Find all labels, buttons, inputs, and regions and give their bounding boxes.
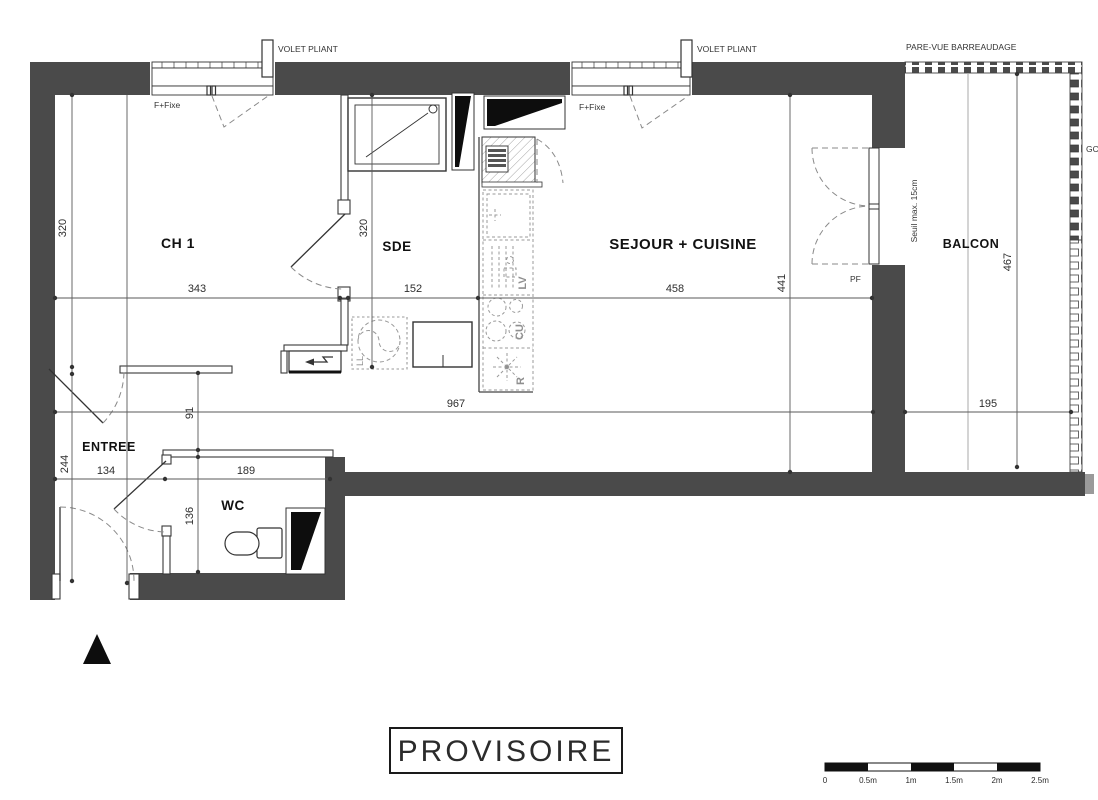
dim-balcon-height: 467 bbox=[1002, 253, 1014, 271]
door-ch1-swing bbox=[291, 267, 344, 289]
railing-right-upper bbox=[1070, 73, 1082, 240]
wall-east-upper bbox=[872, 95, 905, 148]
dim-sde-height: 320 bbox=[358, 219, 370, 237]
door-ch1-leaf bbox=[291, 214, 345, 267]
pf-swing-bottom bbox=[812, 206, 870, 264]
casement-swing-icon bbox=[630, 96, 688, 128]
dim-ch1-width: 343 bbox=[188, 283, 206, 295]
window-right bbox=[572, 62, 690, 128]
dim-sejour-width: 458 bbox=[666, 283, 684, 295]
room-label-balcon: BALCON bbox=[943, 237, 999, 251]
scale-label-0: 0 bbox=[823, 776, 828, 785]
room-label-ch1: CH 1 bbox=[161, 235, 195, 251]
room-label-entree: ENTREE bbox=[82, 440, 136, 454]
room-label-sde: SDE bbox=[382, 239, 411, 254]
wall-east-lower bbox=[872, 265, 905, 474]
dim-wc-depth: 136 bbox=[184, 507, 196, 525]
door-entree-swing bbox=[103, 369, 124, 423]
door-entree-leaf bbox=[49, 369, 103, 423]
balcony-railing bbox=[905, 62, 1082, 472]
kitchen-sink bbox=[487, 194, 530, 237]
scale-bar: 0 0.5m 1m 1.5m 2m 2.5m bbox=[823, 763, 1049, 785]
toilet bbox=[225, 528, 282, 558]
label-pare-vue: PARE-VUE BARREAUDAGE bbox=[906, 42, 1017, 52]
casement-swing-icon bbox=[212, 96, 268, 127]
wall-south-edge bbox=[1085, 474, 1094, 494]
label-gc: GC bbox=[1086, 144, 1098, 154]
fridge-symbol bbox=[493, 353, 521, 381]
sde-fixtures bbox=[289, 98, 472, 372]
railing-top bbox=[905, 62, 1082, 73]
scale-label-15: 1.5m bbox=[945, 776, 963, 785]
volet-pliant-box-left bbox=[262, 40, 273, 77]
north-arrow-icon bbox=[83, 634, 111, 664]
label-cu: CU bbox=[514, 324, 526, 340]
scale-label-2: 2m bbox=[991, 776, 1002, 785]
label-seuil: Seuil max. 15cm bbox=[909, 180, 919, 243]
dimension-lines bbox=[53, 72, 1073, 585]
label-volet-pliant-right: VOLET PLIANT bbox=[697, 44, 757, 54]
dim-ch1-height: 320 bbox=[57, 219, 69, 237]
window-mullion bbox=[207, 86, 211, 95]
floor-plan-drawing: 343 152 458 967 195 134 189 320 244 91 1… bbox=[0, 0, 1098, 800]
wall-south bbox=[333, 472, 1085, 496]
dim-hall-width: 91 bbox=[184, 407, 196, 419]
dim-wc-width: 189 bbox=[237, 465, 255, 477]
door-wc-swing bbox=[114, 509, 166, 532]
radiator bbox=[289, 351, 341, 372]
dim-balcon-width: 195 bbox=[979, 398, 997, 410]
porte-fenetre bbox=[812, 148, 879, 264]
door-jamb bbox=[338, 200, 350, 214]
stamp-text: PROVISOIRE bbox=[398, 735, 615, 768]
wall-west bbox=[30, 62, 55, 600]
dim-entree-depth: 244 bbox=[59, 455, 71, 473]
ventilation-duct bbox=[482, 137, 563, 187]
door-wc-leaf bbox=[114, 461, 166, 509]
front-door-opening bbox=[55, 573, 130, 600]
label-pf: PF bbox=[850, 274, 861, 284]
scale-label-05: 0.5m bbox=[859, 776, 877, 785]
scale-label-25: 2.5m bbox=[1031, 776, 1049, 785]
volet-pliant-box-right bbox=[681, 40, 692, 77]
dim-interior-length: 967 bbox=[447, 398, 465, 410]
label-volet-pliant-left: VOLET PLIANT bbox=[278, 44, 338, 54]
wall-wc-east bbox=[325, 457, 345, 573]
scale-label-1: 1m bbox=[905, 776, 916, 785]
door-jamb bbox=[162, 526, 171, 536]
room-label-sejour: SEJOUR + CUISINE bbox=[609, 236, 757, 253]
provisoire-stamp: PROVISOIRE bbox=[390, 728, 622, 773]
door-jamb bbox=[52, 574, 60, 599]
label-f-fixe-right: F+Fixe bbox=[579, 102, 605, 112]
dishwasher bbox=[492, 246, 516, 288]
label-ll: LL bbox=[355, 356, 365, 366]
door-front-swing bbox=[60, 507, 134, 581]
dim-sejour-height: 441 bbox=[776, 274, 788, 292]
dimension-nodes bbox=[53, 72, 1073, 585]
dim-sde-width: 152 bbox=[404, 283, 422, 295]
dim-entree-width: 134 bbox=[97, 465, 115, 477]
pf-swing-top bbox=[812, 148, 870, 206]
window-left bbox=[152, 62, 273, 127]
railing-right-lower bbox=[1070, 240, 1082, 472]
label-f-fixe-left: F+Fixe bbox=[154, 100, 180, 110]
label-fridge: R bbox=[515, 377, 527, 385]
label-lv: LV bbox=[517, 276, 529, 290]
floor-plan-sheet: 343 152 458 967 195 134 189 320 244 91 1… bbox=[0, 0, 1098, 800]
room-label-wc: WC bbox=[221, 498, 245, 513]
